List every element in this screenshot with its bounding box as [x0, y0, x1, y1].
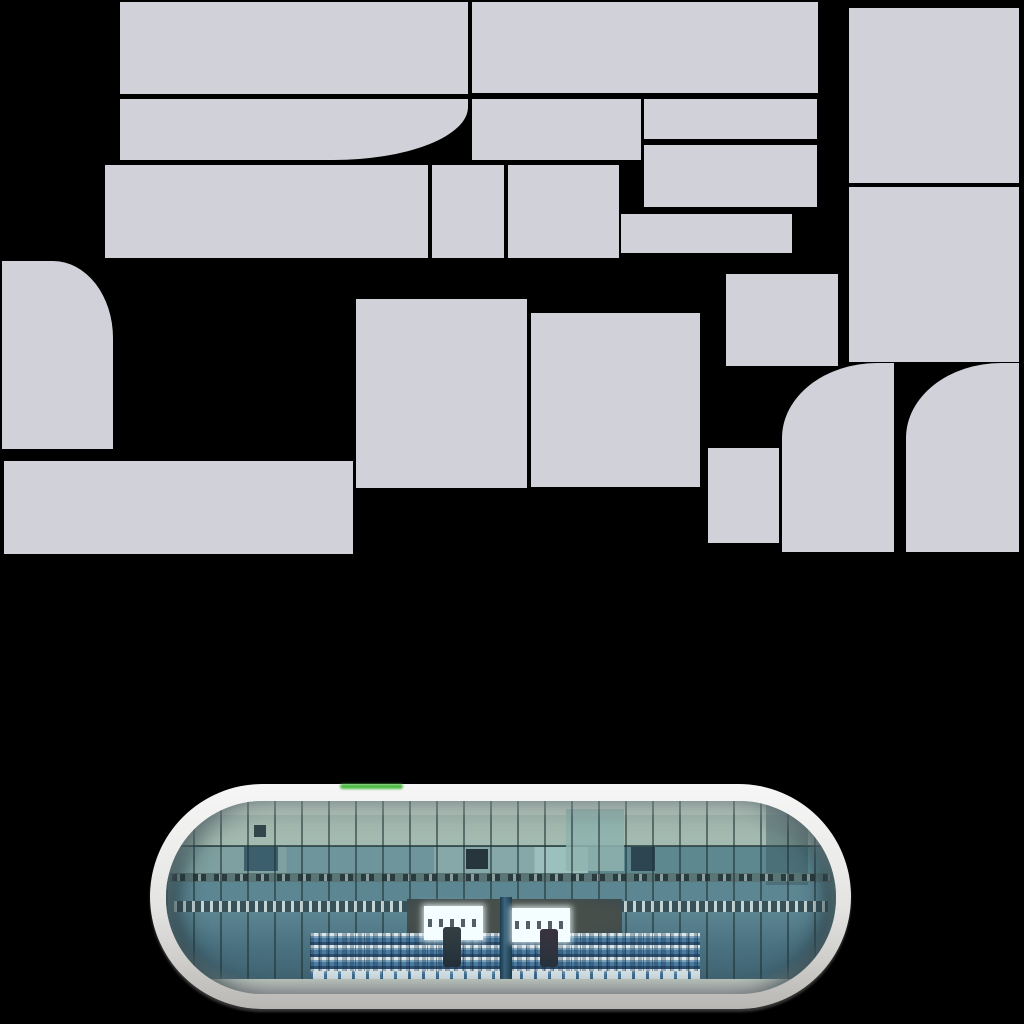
atlas-block — [356, 299, 527, 488]
atlas-block — [644, 145, 817, 207]
floor-band — [166, 979, 836, 994]
capsule-drop-shadow — [690, 999, 810, 1011]
atlas-block — [2, 261, 113, 449]
center-column — [500, 897, 512, 979]
atlas-block — [472, 2, 818, 93]
atlas-block — [906, 363, 1019, 552]
atlas-block — [120, 99, 468, 160]
atlas-block — [432, 165, 504, 258]
atlas-block — [105, 165, 428, 258]
atlas-block — [4, 461, 353, 554]
atlas-block — [782, 363, 894, 552]
atlas-block — [644, 99, 817, 139]
capsule-drop-shadow — [330, 997, 760, 1013]
atlas-block — [849, 187, 1019, 362]
stadium-photo-capsule — [150, 784, 851, 1009]
atlas-block — [472, 99, 641, 160]
atlas-block — [849, 8, 1019, 183]
stadium-facade-photo — [166, 801, 836, 994]
atlas-block — [508, 165, 619, 258]
dark-figure — [443, 927, 461, 967]
texture-atlas-canvas — [0, 0, 1024, 1024]
atlas-block — [708, 448, 779, 543]
atlas-block — [531, 313, 700, 487]
dark-figure — [540, 929, 558, 967]
green-streak — [340, 784, 403, 789]
atlas-block — [621, 214, 792, 253]
atlas-block — [120, 2, 468, 94]
atlas-block — [726, 274, 838, 366]
